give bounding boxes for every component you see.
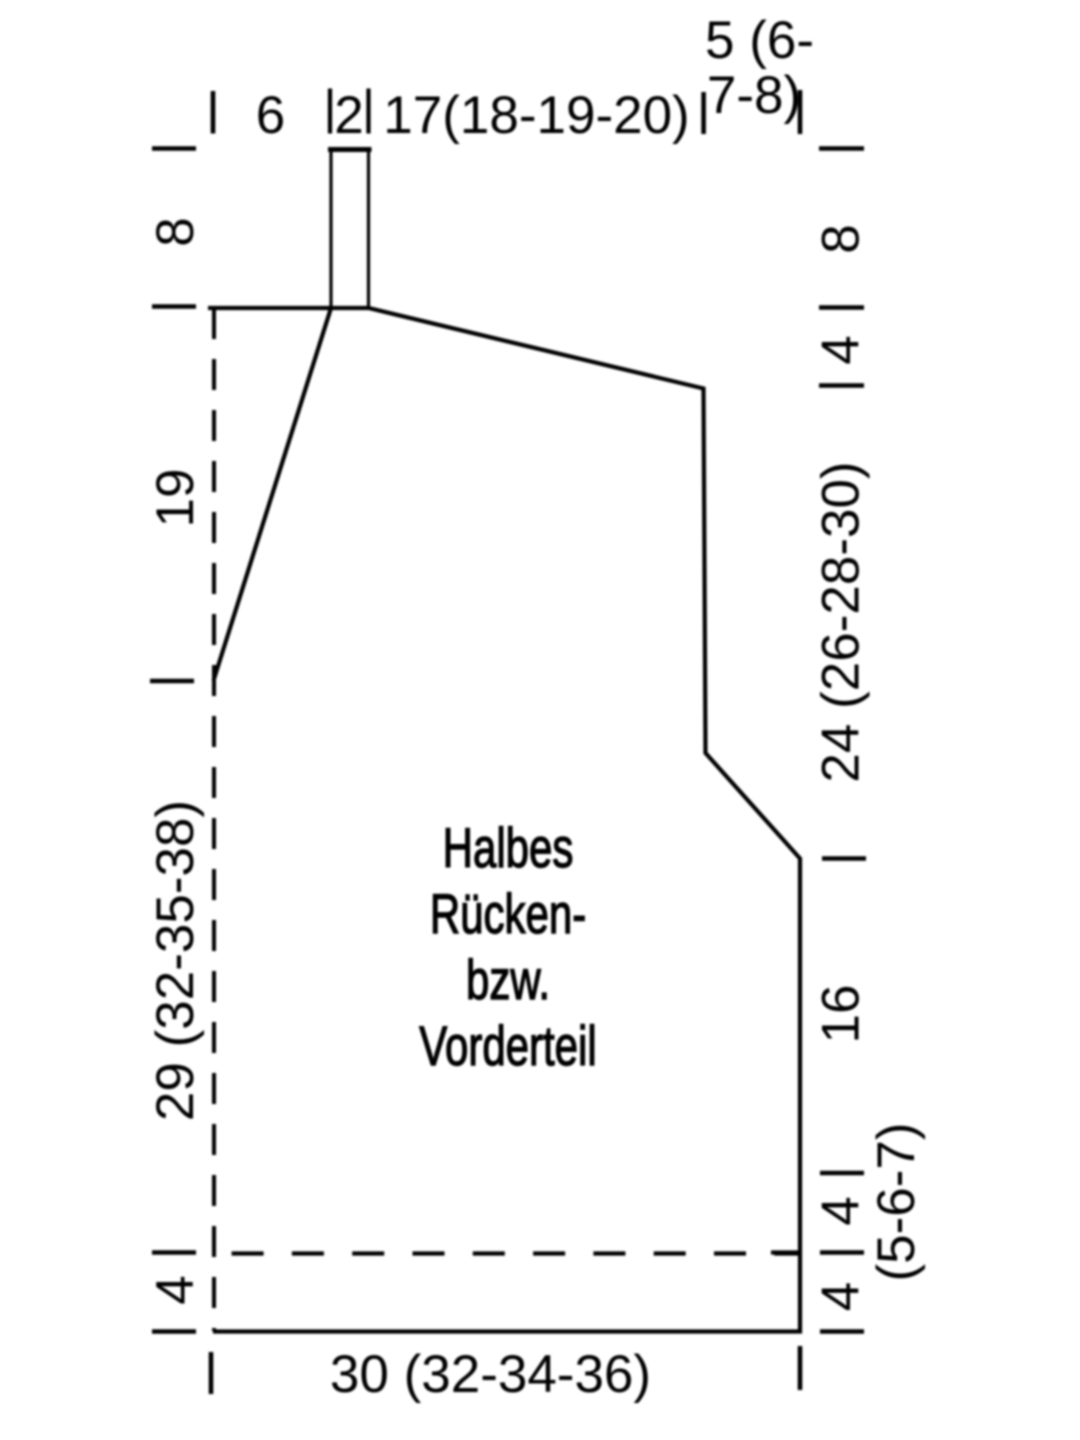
svg-text:29 (32-35-38): 29 (32-35-38) bbox=[146, 800, 205, 1121]
svg-text:bzw.: bzw. bbox=[466, 949, 550, 1011]
svg-text:2: 2 bbox=[334, 86, 363, 145]
svg-text:5 (6-: 5 (6- bbox=[705, 11, 814, 70]
svg-text:4: 4 bbox=[812, 335, 871, 364]
svg-text:8: 8 bbox=[146, 217, 205, 246]
svg-text:4: 4 bbox=[812, 1282, 871, 1311]
svg-text:4: 4 bbox=[812, 1196, 871, 1225]
svg-text:Vorderteil: Vorderteil bbox=[419, 1015, 596, 1077]
svg-text:30 (32-34-36): 30 (32-34-36) bbox=[330, 1345, 651, 1404]
svg-text:(5-6-7): (5-6-7) bbox=[867, 1122, 926, 1281]
svg-text:6: 6 bbox=[256, 86, 285, 145]
svg-text:4: 4 bbox=[146, 1275, 205, 1304]
svg-text:Rücken-: Rücken- bbox=[430, 883, 586, 945]
svg-text:8: 8 bbox=[812, 224, 871, 253]
svg-text:Halbes: Halbes bbox=[443, 817, 574, 879]
svg-text:24 (26-28-30): 24 (26-28-30) bbox=[812, 461, 871, 782]
svg-text:17(18-19-20): 17(18-19-20) bbox=[383, 86, 689, 145]
svg-text:7-8): 7-8) bbox=[707, 66, 801, 125]
svg-text:19: 19 bbox=[146, 469, 205, 528]
svg-text:16: 16 bbox=[812, 985, 871, 1044]
